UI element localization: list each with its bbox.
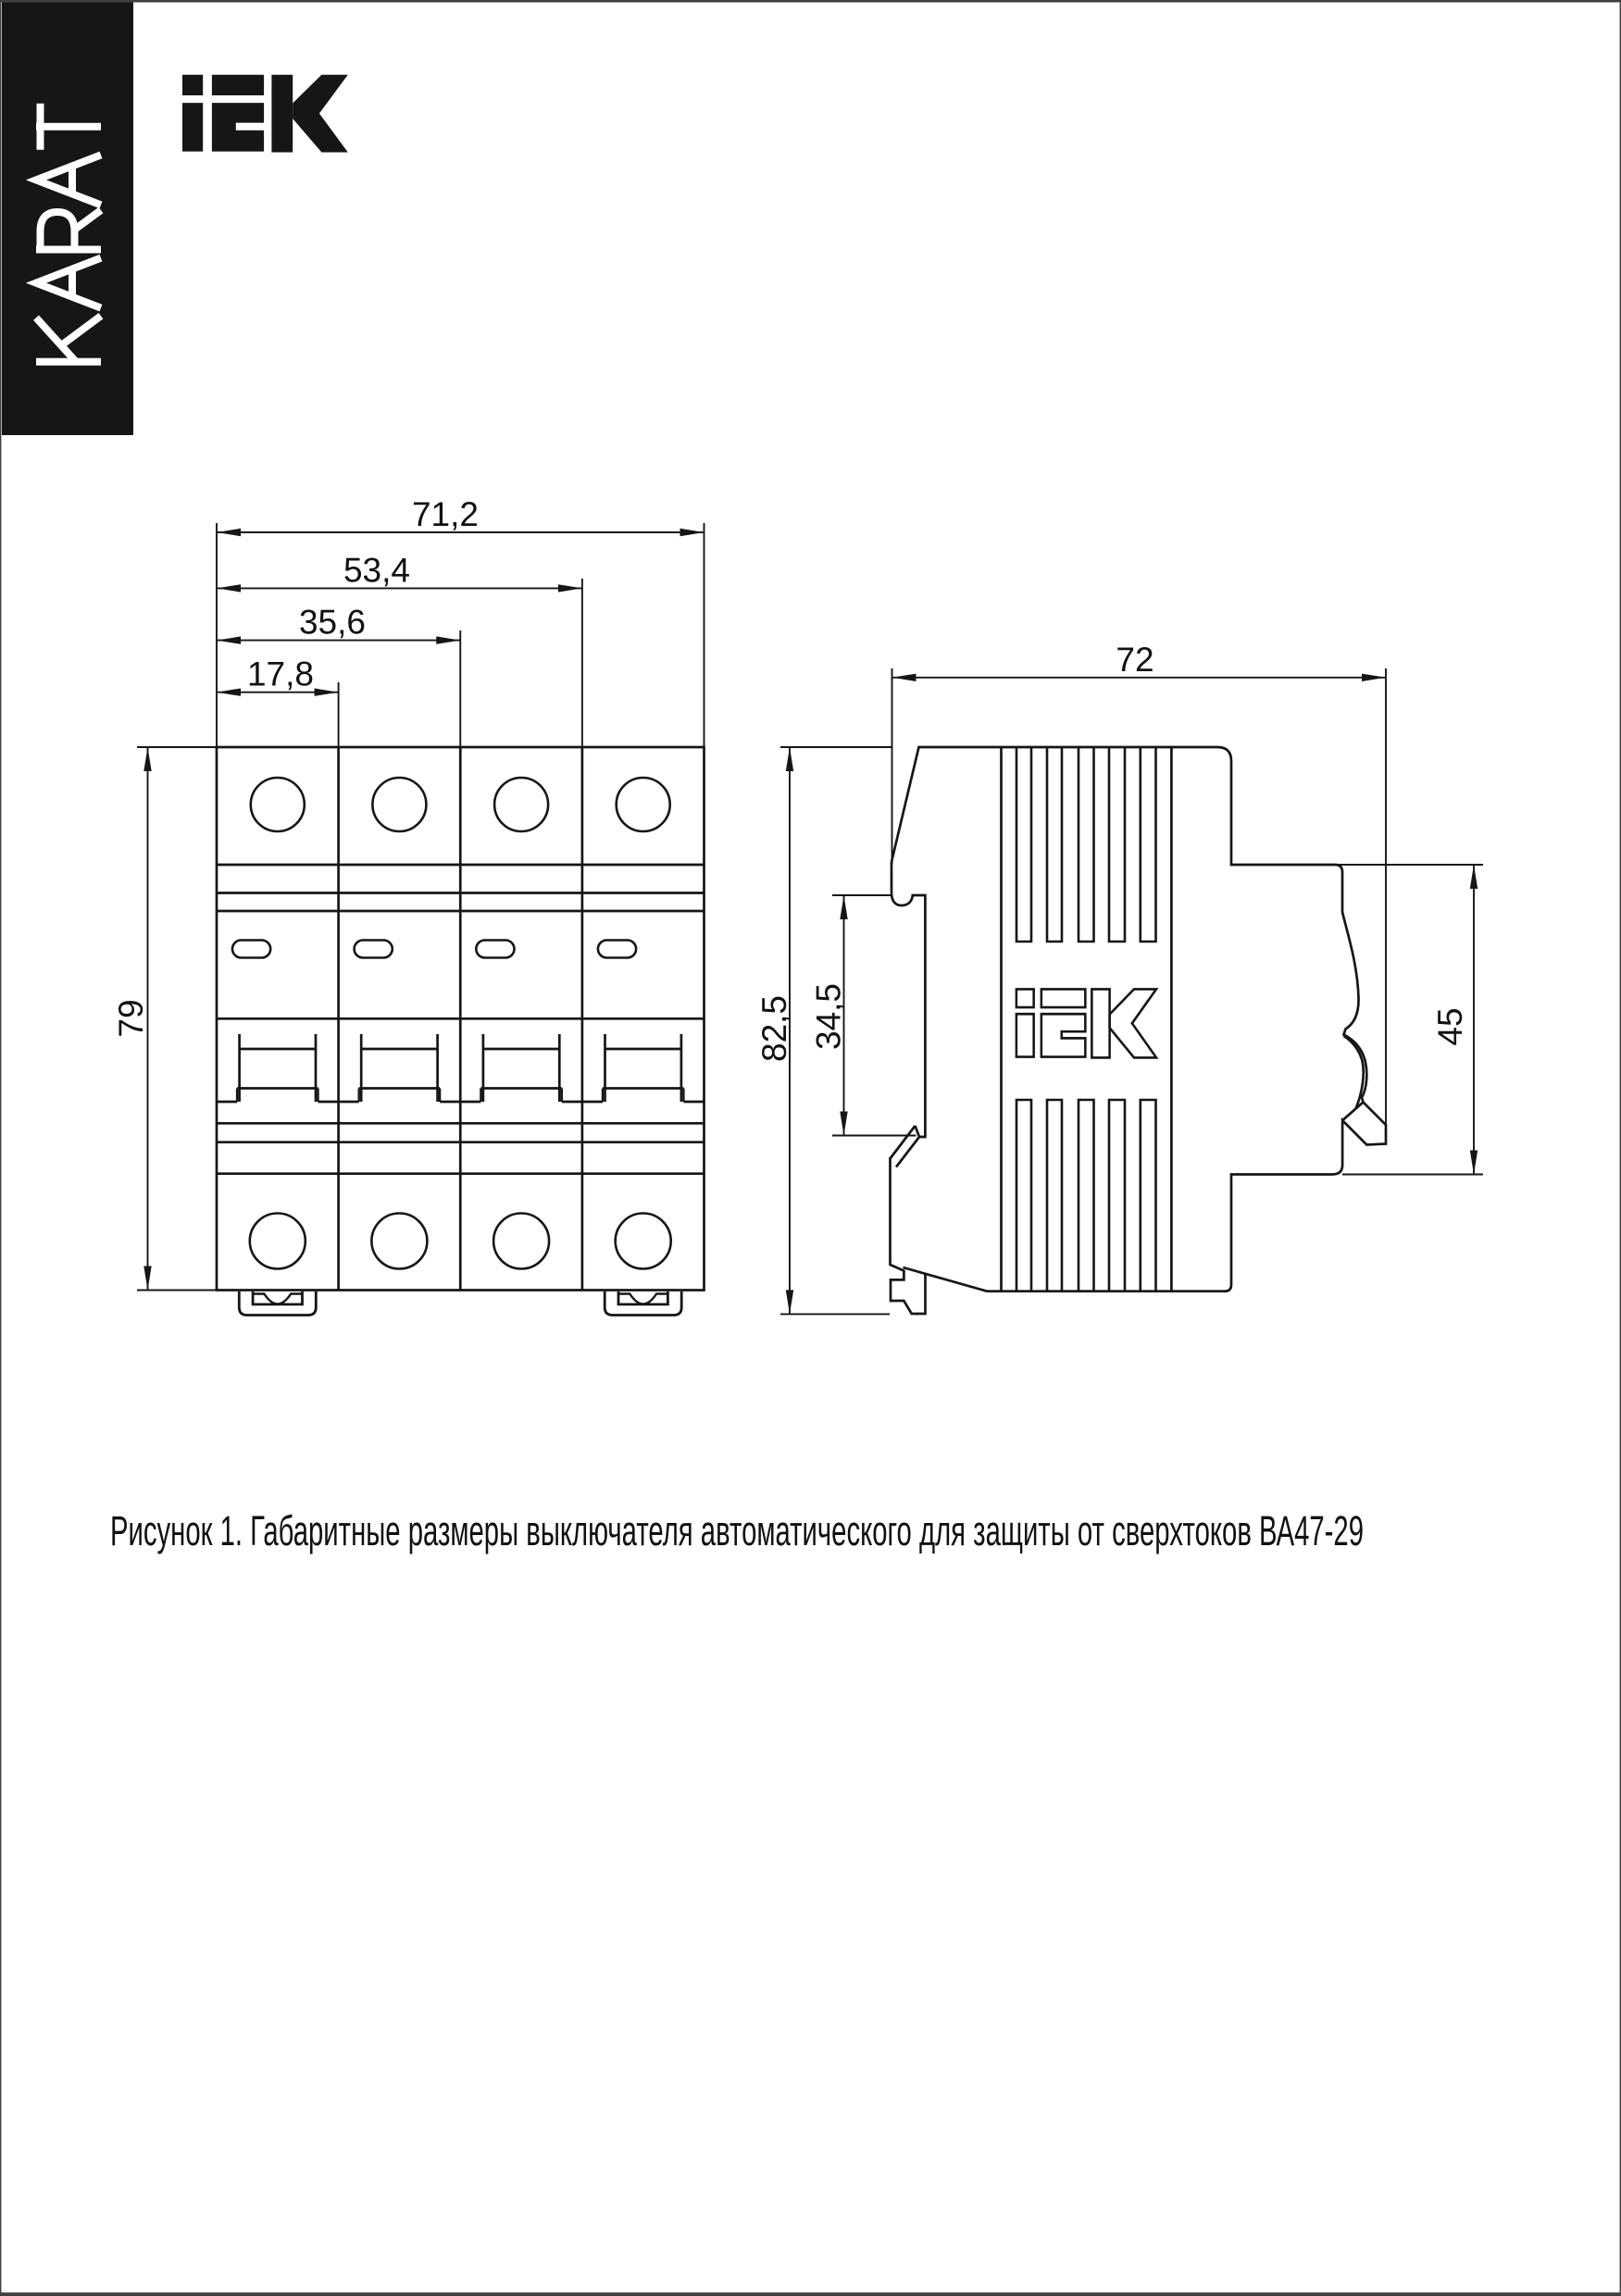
svg-text:79: 79 (112, 999, 150, 1037)
svg-text:Рисунок 1. Габаритные размеры: Рисунок 1. Габаритные размеры выключател… (110, 1507, 1364, 1554)
svg-text:72: 72 (1116, 641, 1153, 679)
svg-text:45: 45 (1431, 1007, 1469, 1045)
svg-text:71,2: 71,2 (412, 495, 479, 533)
svg-text:34,5: 34,5 (810, 983, 848, 1050)
svg-text:17,8: 17,8 (247, 655, 314, 693)
svg-text:82,5: 82,5 (755, 995, 793, 1062)
svg-text:53,4: 53,4 (343, 551, 410, 589)
svg-text:35,6: 35,6 (299, 604, 366, 642)
